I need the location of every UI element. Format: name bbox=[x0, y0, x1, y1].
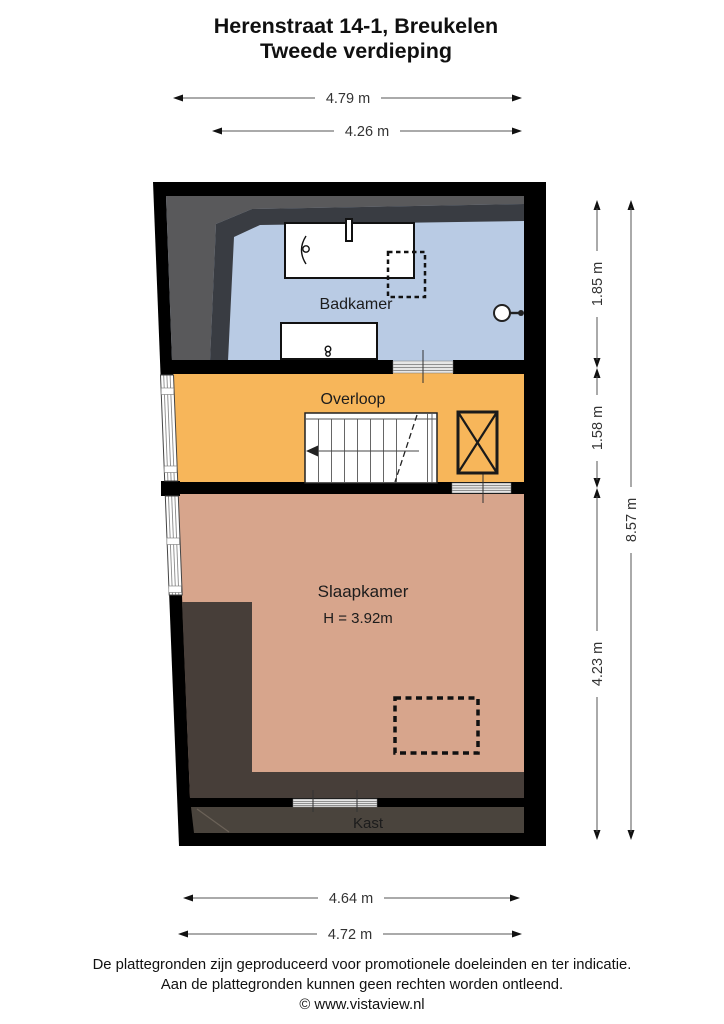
floor-plan-canvas: Herenstraat 14-1, Breukelen Tweede verdi… bbox=[0, 0, 724, 1024]
interior-wall-kast-left bbox=[191, 798, 293, 807]
washbasin-unit bbox=[281, 323, 377, 359]
room-label-slaapkamer: Slaapkamer bbox=[318, 582, 409, 601]
dimension-bottom-outer: 4.72 m bbox=[178, 927, 522, 943]
dimension-top-inner: 4.26 m bbox=[212, 124, 522, 140]
room-label-badkamer: Badkamer bbox=[320, 296, 394, 313]
interior-wall-slaapkamer-right bbox=[511, 482, 524, 494]
dim-label-right-badkamer: 1.85 m bbox=[590, 262, 606, 306]
footer-copyright: © www.vistaview.nl bbox=[299, 997, 424, 1013]
bath-faucet bbox=[346, 219, 352, 241]
dimension-right-slaapkamer: 4.23 m bbox=[590, 488, 606, 840]
interior-wall-badkamer bbox=[164, 360, 393, 374]
room-label-kast: Kast bbox=[353, 815, 384, 832]
bathtub bbox=[285, 219, 414, 278]
room-label-overloop: Overloop bbox=[321, 391, 386, 408]
room-height-note: H = 3.92m bbox=[323, 610, 393, 627]
footer-disclaimer-line2: Aan de plattegronden kunnen geen rechten… bbox=[161, 977, 563, 993]
dimension-right-badkamer: 1.85 m bbox=[590, 200, 606, 368]
dim-label-bottom-outer: 4.72 m bbox=[328, 927, 372, 943]
dimension-bottom-inner: 4.64 m bbox=[183, 891, 520, 907]
dim-label-right-slaapkamer: 4.23 m bbox=[590, 642, 606, 686]
footer-disclaimer-line1: De plattegronden zijn geproduceerd voor … bbox=[93, 957, 632, 973]
interior-wall-kast-right bbox=[377, 798, 524, 807]
dim-label-right-total: 8.57 m bbox=[624, 498, 640, 542]
dimension-right-total: 8.57 m bbox=[624, 200, 640, 840]
interior-wall-badkamer-right bbox=[453, 360, 524, 374]
staircase bbox=[305, 413, 437, 483]
page-title-line1: Herenstraat 14-1, Breukelen bbox=[214, 14, 498, 38]
dim-label-right-overloop: 1.58 m bbox=[590, 406, 606, 450]
dimension-top-outer: 4.79 m bbox=[173, 91, 522, 107]
wall-stub-left bbox=[161, 481, 180, 496]
dim-label-top-outer: 4.79 m bbox=[326, 91, 370, 107]
interior-wall-slaapkamer bbox=[166, 482, 452, 494]
floorplan-page: Herenstraat 14-1, Breukelen Tweede verdi… bbox=[0, 0, 724, 1024]
page-title-line2: Tweede verdieping bbox=[260, 39, 452, 63]
dim-label-top-inner: 4.26 m bbox=[345, 124, 389, 140]
dimension-right-overloop: 1.58 m bbox=[590, 368, 606, 488]
dim-label-bottom-inner: 4.64 m bbox=[329, 891, 373, 907]
